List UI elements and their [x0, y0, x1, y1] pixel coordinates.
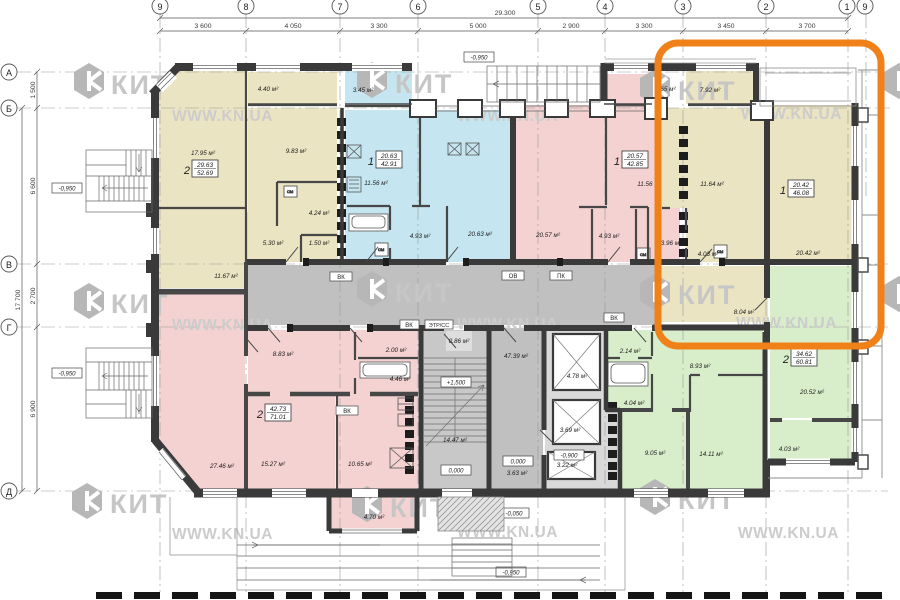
svg-text:6: 6 [415, 2, 420, 12]
svg-text:3: 3 [680, 2, 685, 12]
svg-text:4.78 м²: 4.78 м² [567, 373, 588, 380]
svg-text:2: 2 [256, 409, 263, 421]
svg-text:Д: Д [6, 487, 12, 497]
svg-text:71.01: 71.01 [270, 414, 286, 421]
svg-text:2.00 м²: 2.00 м² [385, 347, 407, 354]
svg-text:8: 8 [243, 2, 248, 12]
svg-text:4.04 м²: 4.04 м² [624, 400, 645, 407]
svg-text:42.91: 42.91 [381, 161, 397, 168]
svg-text:5.30 м²: 5.30 м² [263, 240, 284, 247]
svg-text:-0,900: -0,900 [560, 454, 578, 460]
svg-text:27.46 м²: 27.46 м² [209, 463, 235, 470]
svg-text:0.86 м²: 0.86 м² [449, 338, 470, 345]
svg-text:ВК: ВК [343, 409, 351, 415]
svg-text:4.40 м²: 4.40 м² [258, 86, 279, 93]
svg-text:КИТ: КИТ [395, 278, 453, 308]
svg-text:14.47 м²: 14.47 м² [443, 437, 468, 444]
svg-text:2.14 м²: 2.14 м² [619, 348, 641, 355]
svg-text:-0,950: -0,950 [58, 187, 76, 193]
svg-text:СМ: СМ [378, 247, 384, 252]
svg-text:20.52 м²: 20.52 м² [799, 389, 825, 396]
svg-text:2: 2 [763, 2, 768, 12]
svg-text:52.69: 52.69 [197, 170, 213, 177]
svg-text:2: 2 [782, 354, 789, 366]
svg-text:3 450: 3 450 [717, 23, 734, 30]
svg-text:3 300: 3 300 [370, 23, 387, 30]
svg-text:СМ: СМ [640, 252, 646, 257]
svg-text:47.39 м²: 47.39 м² [504, 353, 529, 360]
svg-text:А: А [6, 68, 12, 78]
svg-text:1: 1 [844, 2, 849, 12]
svg-text:11.56 м²: 11.56 м² [364, 180, 388, 187]
svg-text:3 300: 3 300 [635, 23, 652, 30]
svg-text:20.63: 20.63 [380, 153, 397, 160]
svg-text:3.45 м²: 3.45 м² [353, 87, 374, 94]
svg-text:5: 5 [535, 2, 540, 12]
svg-text:WWW.KN.UA: WWW.KN.UA [172, 108, 273, 125]
svg-text:-0,950: -0,950 [502, 571, 520, 577]
svg-text:2 700: 2 700 [30, 287, 37, 304]
svg-text:8.93 м²: 8.93 м² [690, 363, 711, 370]
svg-text:42.73: 42.73 [270, 406, 286, 413]
svg-text:7: 7 [337, 2, 342, 12]
svg-text:ВК: ВК [405, 323, 413, 329]
svg-text:ВК: ВК [337, 275, 345, 281]
svg-text:1 500: 1 500 [30, 81, 37, 98]
svg-text:9.05 м²: 9.05 м² [645, 450, 666, 457]
svg-text:1: 1 [368, 156, 374, 168]
svg-text:СМ: СМ [287, 189, 293, 194]
svg-text:46.08: 46.08 [793, 190, 809, 197]
svg-text:8.83 м²: 8.83 м² [273, 351, 294, 358]
svg-text:20.63 м²: 20.63 м² [467, 231, 493, 238]
svg-text:3.69 м²: 3.69 м² [560, 427, 581, 434]
svg-text:0,000: 0,000 [448, 469, 464, 475]
svg-text:29.63: 29.63 [196, 162, 213, 169]
svg-text:4.24 м²: 4.24 м² [309, 210, 330, 217]
svg-text:Б: Б [6, 104, 12, 114]
svg-text:КИТ: КИТ [395, 69, 453, 99]
svg-text:20.42 м²: 20.42 м² [795, 250, 821, 257]
svg-text:1: 1 [614, 156, 620, 168]
svg-text:6 600: 6 600 [30, 177, 37, 194]
svg-text:14.11 м²: 14.11 м² [699, 451, 723, 458]
svg-text:5 000: 5 000 [469, 23, 486, 30]
svg-text:29.300: 29.300 [495, 10, 516, 17]
svg-text:8.04 м²: 8.04 м² [734, 309, 755, 316]
svg-text:1.50 м²: 1.50 м² [309, 240, 330, 247]
svg-text:ВК: ВК [610, 316, 618, 322]
svg-text:WWW.KN.UA: WWW.KN.UA [172, 526, 273, 543]
svg-text:20.57 м²: 20.57 м² [535, 232, 561, 239]
svg-text:4.03 м²: 4.03 м² [698, 251, 719, 258]
svg-text:11.67 м²: 11.67 м² [214, 273, 238, 280]
svg-text:2: 2 [183, 165, 190, 177]
svg-text:+1,500: +1,500 [447, 381, 466, 387]
svg-text:4 050: 4 050 [284, 23, 301, 30]
svg-text:-0,050: -0,050 [505, 512, 523, 518]
svg-text:4.03 м²: 4.03 м² [779, 446, 800, 453]
svg-text:4.46 м²: 4.46 м² [390, 376, 411, 383]
svg-text:3.96 м²: 3.96 м² [661, 240, 682, 247]
svg-text:1: 1 [780, 185, 786, 197]
svg-text:ПК: ПК [557, 274, 565, 280]
svg-text:15.27 м²: 15.27 м² [261, 461, 286, 468]
svg-text:0,000: 0,000 [510, 460, 526, 466]
svg-text:3 700: 3 700 [798, 23, 815, 30]
svg-text:3.63 м²: 3.63 м² [507, 470, 528, 477]
svg-text:42.85: 42.85 [627, 161, 643, 168]
svg-text:9: 9 [157, 2, 162, 12]
svg-text:65 м²: 65 м² [660, 86, 676, 93]
svg-text:3 600: 3 600 [194, 23, 211, 30]
svg-text:-0,950: -0,950 [58, 372, 76, 378]
svg-text:ОВ: ОВ [509, 274, 518, 280]
svg-text:КИТ: КИТ [678, 280, 736, 310]
svg-text:4.93 м²: 4.93 м² [599, 233, 620, 240]
svg-text:17.95 м²: 17.95 м² [191, 150, 216, 157]
svg-text:17 700: 17 700 [15, 289, 22, 310]
svg-text:6 900: 6 900 [30, 400, 37, 417]
svg-text:20.57: 20.57 [626, 153, 643, 160]
svg-text:2 900: 2 900 [562, 23, 579, 30]
svg-text:9: 9 [862, 2, 867, 12]
svg-text:4.93 м²: 4.93 м² [410, 233, 431, 240]
svg-text:60.81: 60.81 [796, 359, 812, 366]
svg-text:4.70 м²: 4.70 м² [364, 514, 385, 521]
svg-text:-0,950: -0,950 [470, 56, 488, 62]
svg-text:9.83 м²: 9.83 м² [286, 148, 307, 155]
svg-text:20.42: 20.42 [792, 182, 809, 189]
svg-text:11.64 м²: 11.64 м² [700, 181, 724, 188]
svg-text:ЭТР/СС: ЭТР/СС [429, 323, 449, 329]
svg-text:7.92 м²: 7.92 м² [700, 87, 721, 94]
svg-text:10.65 м²: 10.65 м² [348, 461, 373, 468]
svg-text:3.22 м²: 3.22 м² [557, 462, 578, 469]
svg-text:4: 4 [602, 2, 607, 12]
svg-text:В: В [6, 260, 12, 270]
svg-text:34.62: 34.62 [796, 351, 812, 358]
svg-text:Г: Г [7, 323, 12, 333]
svg-text:WWW.KN.UA: WWW.KN.UA [738, 525, 839, 542]
svg-text:КИТ: КИТ [110, 489, 168, 519]
